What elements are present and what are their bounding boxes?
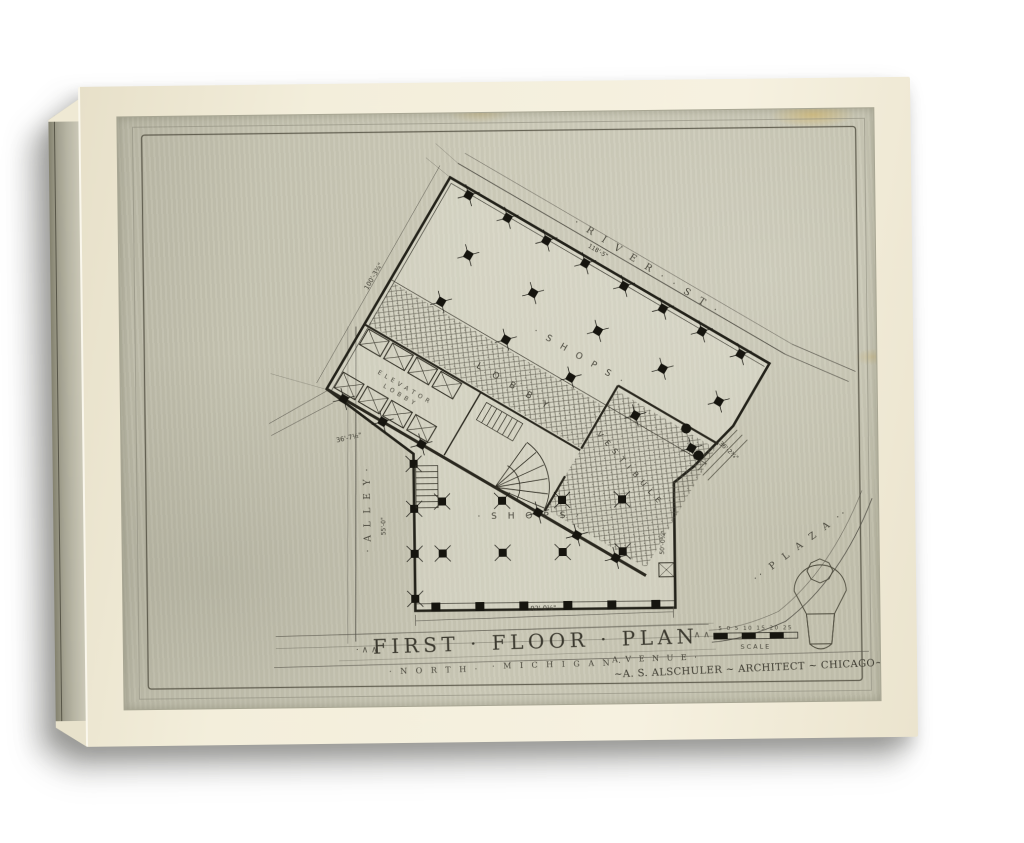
drawing-paper: · S H O P S · L O B B Y E L E V A T O R … <box>116 107 881 710</box>
label-avenue: · A V E N U E · <box>602 653 700 665</box>
dim-michigan-front-text: 92'-0½" <box>530 604 556 613</box>
canvas-front: · S H O P S · L O B B Y E L E V A T O R … <box>78 77 918 747</box>
dim-alley-side-text: 55'-0" <box>380 517 387 535</box>
label-shops-lower: · S H O P S · <box>477 511 583 522</box>
dim-west-wall-text: 100'-3¾" <box>363 261 385 291</box>
dim-bend-wall-text: 36'-7½" <box>335 431 362 444</box>
product-photo-background: · S H O P S · L O B B Y E L E V A T O R … <box>0 0 1024 843</box>
scale-numbers: 5 0 5 10 15 20 25 <box>718 625 793 632</box>
scale-label: SCALE <box>740 642 771 650</box>
canvas-print: · S H O P S · L O B B Y E L E V A T O R … <box>48 77 918 749</box>
plaza-fountain <box>794 559 847 650</box>
dim-east-side-text: 50'-0¾" <box>659 530 667 554</box>
label-alley: · A L L E Y · <box>363 466 374 552</box>
scale-bar: 5 0 5 10 15 20 25 SCALE <box>714 625 798 651</box>
dimension-alley-side: 55'-0" <box>380 517 387 535</box>
floor-plan-svg: · S H O P S · L O B B Y E L E V A T O R … <box>117 108 880 709</box>
label-north: · N O R T H · <box>389 664 480 676</box>
label-plaza: ·· P L A Z A ·· <box>751 506 850 584</box>
dimension-bend-wall: 36'-7½" <box>335 431 362 445</box>
title-decor-right: ∧ ∧ · <box>694 630 716 640</box>
